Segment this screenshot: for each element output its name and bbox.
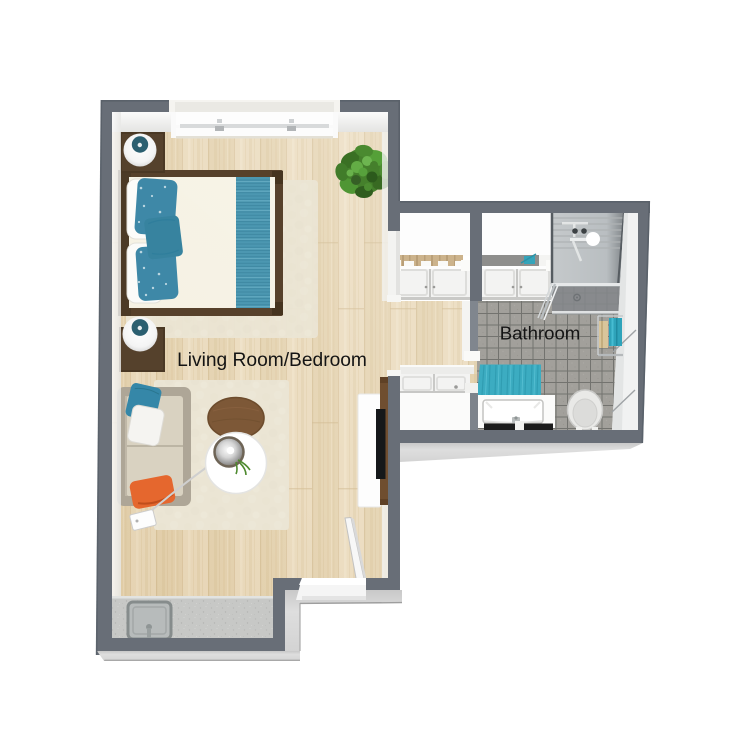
svg-text:Living Room/Bedroom: Living Room/Bedroom	[177, 350, 367, 371]
svg-text:Bathroom: Bathroom	[500, 323, 581, 344]
